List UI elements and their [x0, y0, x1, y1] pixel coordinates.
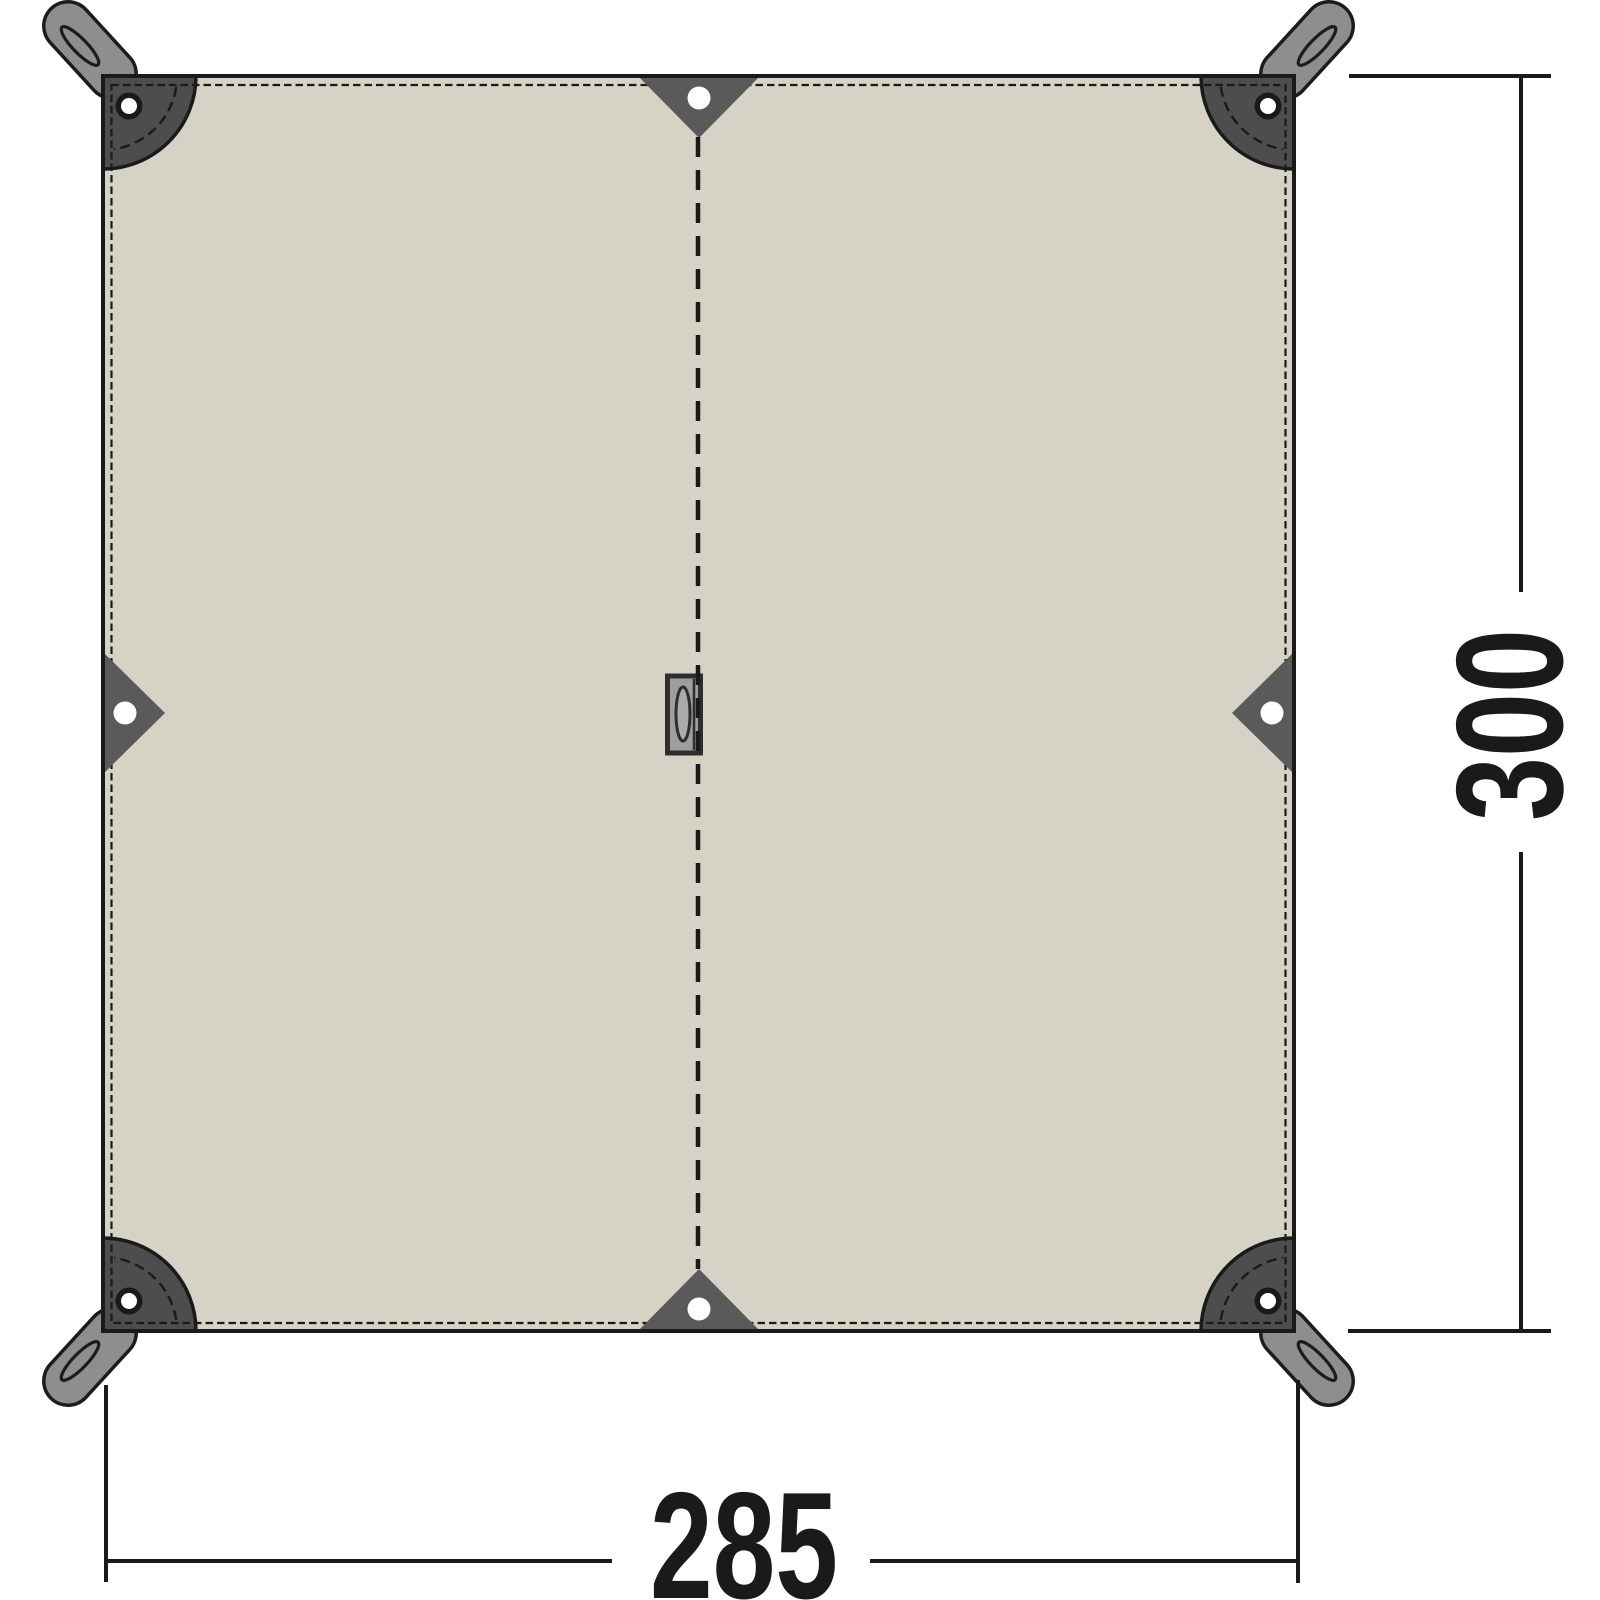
- height-dimension-label: 300: [1425, 629, 1595, 821]
- diagram-canvas: 300 285: [0, 0, 1600, 1600]
- center-buckle: [668, 676, 701, 753]
- tarp-dimension-diagram: 300 285: [0, 0, 1600, 1600]
- buckle-slot: [676, 687, 690, 741]
- width-dimension-label: 285: [650, 1461, 838, 1600]
